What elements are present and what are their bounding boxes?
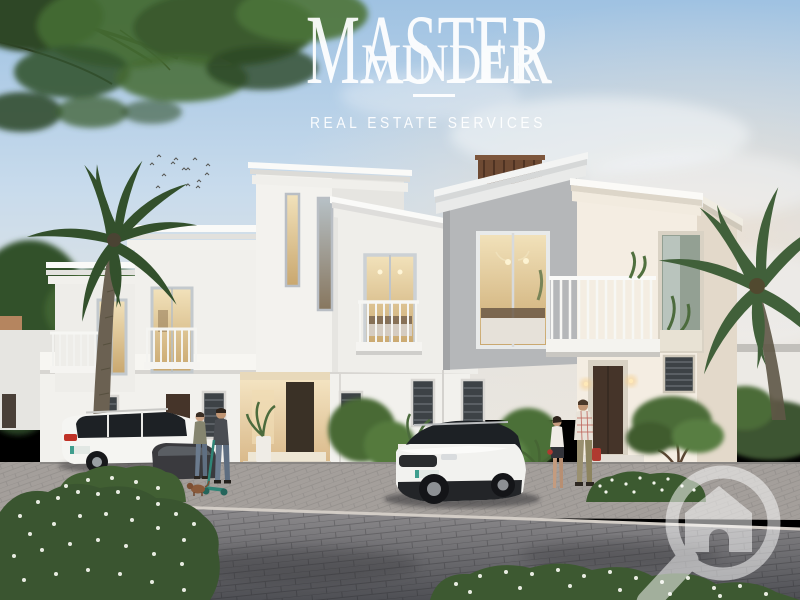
slit-window	[318, 198, 332, 310]
top	[193, 421, 207, 444]
car-windows	[76, 412, 187, 438]
white-top	[550, 426, 564, 447]
louver-window	[462, 380, 484, 426]
grille	[399, 455, 437, 467]
tee-shirt	[213, 419, 229, 446]
recessed-window	[660, 233, 702, 351]
brand-divider	[413, 94, 455, 97]
slit-window	[286, 194, 299, 286]
shorts	[551, 447, 564, 458]
taillight	[64, 434, 77, 441]
plaid-shirt	[574, 411, 593, 441]
wall-sconce-light	[629, 379, 633, 383]
building-mid-left-block	[125, 225, 270, 372]
shopping-bag	[592, 448, 601, 461]
brand-line2: MINDER	[361, 33, 539, 93]
terracotta-wall	[0, 316, 22, 332]
louver-window	[664, 356, 694, 392]
brand-tagline: REAL ESTATE SERVICES	[310, 115, 546, 132]
entrance-door	[286, 382, 314, 460]
wall-sconce-light	[584, 382, 588, 386]
building-right-gray-block	[434, 152, 588, 370]
master-bedroom-window	[478, 233, 548, 347]
headlight	[441, 454, 457, 460]
louver-window	[412, 380, 434, 426]
real-estate-render-photo: MASTER MINDER REAL ESTATE SERVICES	[0, 0, 800, 600]
